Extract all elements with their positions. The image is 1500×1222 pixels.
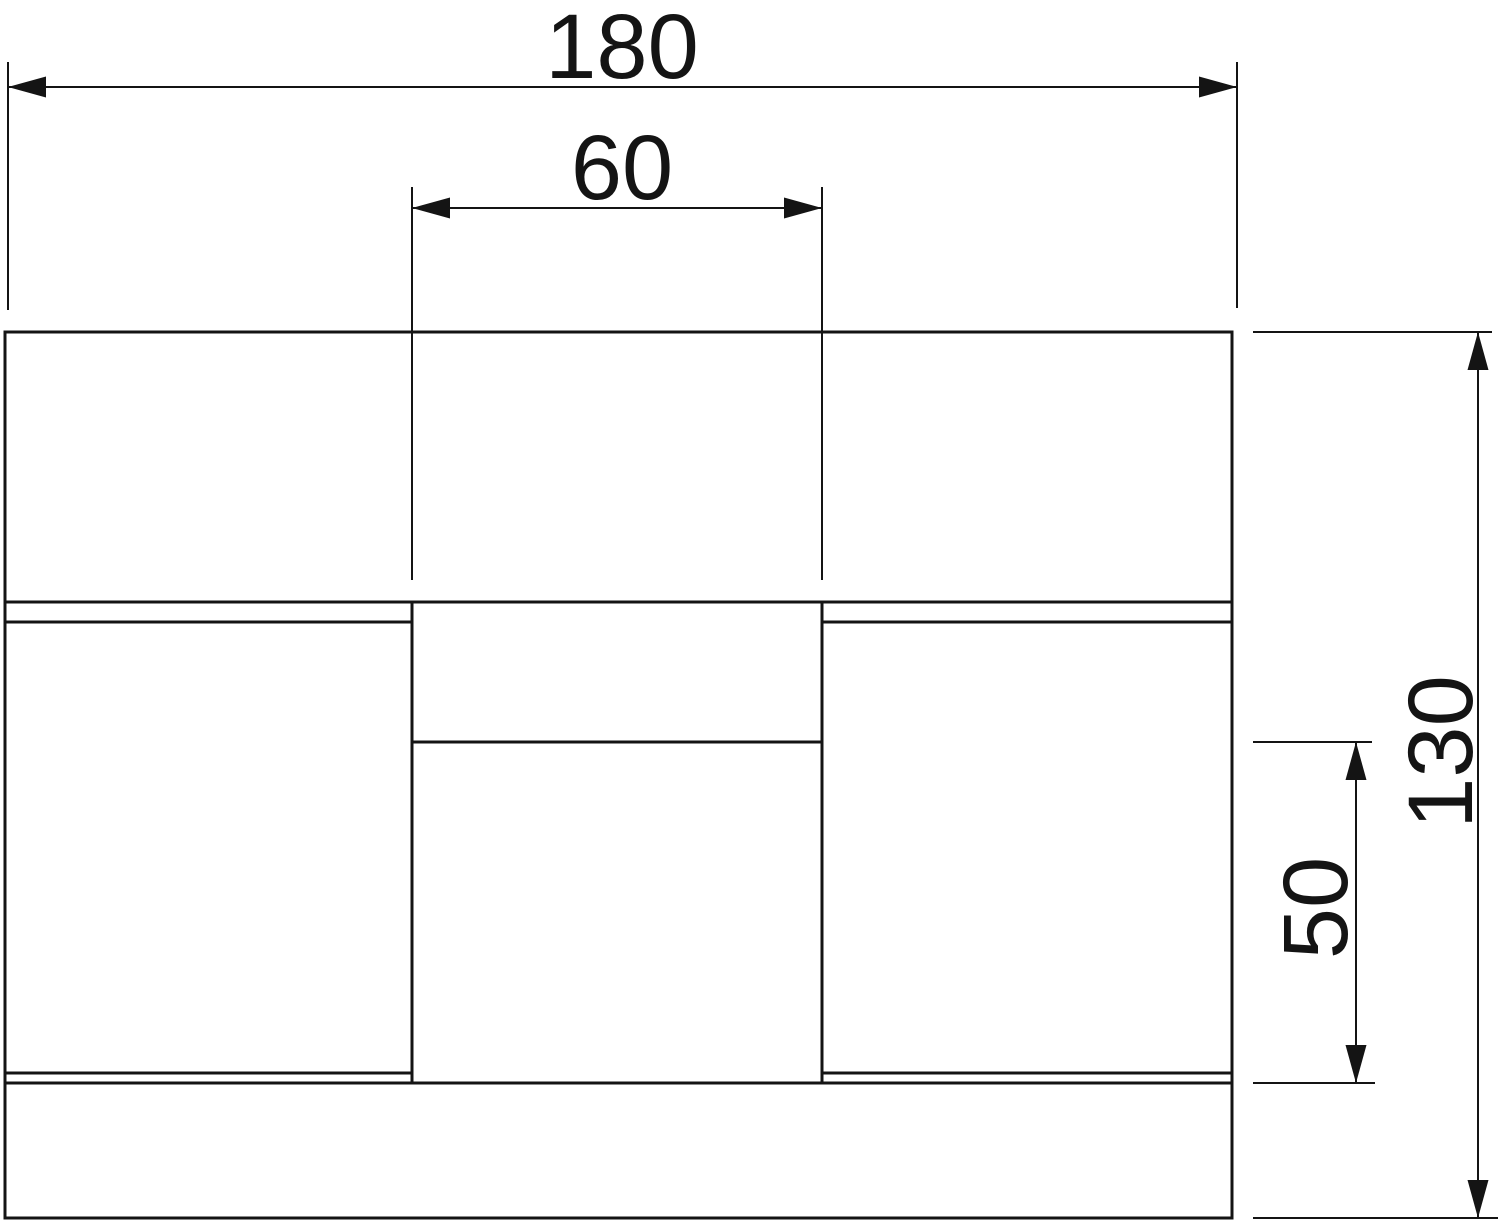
dim-pocket-width-extension-lines — [412, 187, 822, 580]
dim-total-height: 130 — [1253, 332, 1498, 1218]
technical-drawing: 180 60 130 50 — [0, 0, 1500, 1222]
dim-lower-middle-height-label: 50 — [1265, 857, 1367, 959]
dim-total-width-label: 180 — [545, 0, 699, 98]
outer-outline — [5, 332, 1232, 1218]
drawing-canvas: 180 60 130 50 — [0, 0, 1500, 1222]
dim-pocket-width-label: 60 — [571, 117, 673, 219]
dim-pocket-width-arrow-left — [412, 198, 450, 219]
dim-pocket-width-arrow-right — [784, 198, 822, 219]
dim-lower-middle-height-arrow-bottom — [1346, 1045, 1367, 1083]
dim-total-height-label: 130 — [1390, 675, 1492, 829]
dim-total-height-arrow-bottom — [1468, 1180, 1489, 1218]
dim-pocket-width: 60 — [412, 117, 822, 580]
part-outline-group — [5, 332, 1232, 1218]
dim-total-height-arrow-top — [1468, 332, 1489, 370]
dim-lower-middle-height-arrow-top — [1346, 742, 1367, 780]
dim-total-width-arrow-left — [8, 77, 46, 98]
dim-lower-middle-height: 50 — [1253, 742, 1375, 1083]
dim-total-width-arrow-right — [1199, 77, 1237, 98]
